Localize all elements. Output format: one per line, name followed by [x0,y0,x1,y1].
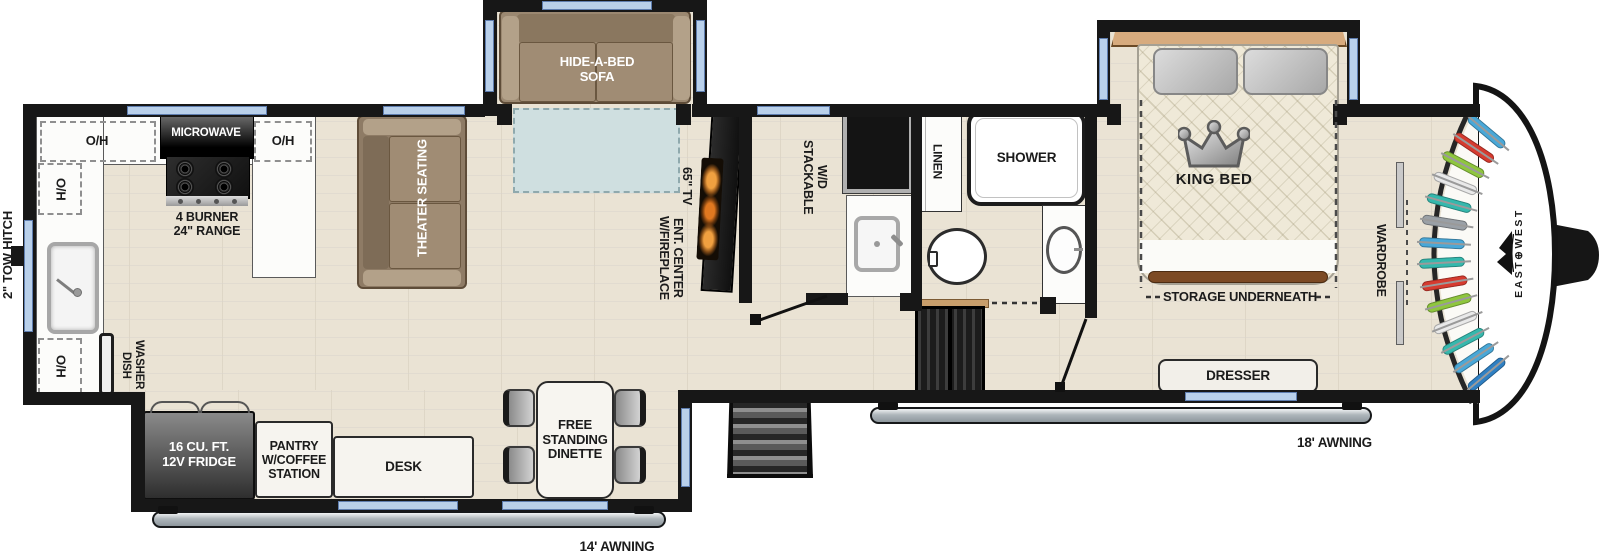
dresser-label: DRESSER [1158,367,1318,385]
bed-slide-wall-top [1097,20,1360,32]
kingpin-icon [1552,224,1599,287]
tow-hitch-label: 2" TOW HITCH [0,200,16,310]
drain-icon [874,241,880,247]
pillow [1243,48,1328,95]
burner-icon [215,178,233,196]
shower-label: SHOWER [975,148,1078,168]
wardrobe-label: WARDROBE [1370,210,1392,310]
brand-logo-text: EAST⊕WEST [1514,208,1526,298]
drain-icon [73,288,82,297]
bath-corner-stub [900,293,922,311]
dinette-chair [614,389,646,427]
king-bed-label: KING BED [1160,170,1268,190]
oh-label-1: O/H [68,131,126,151]
pantry-label: PANTRY W/COFFEE STATION [255,436,333,484]
fridge-door-arc [200,401,250,413]
wall-top-front [1350,104,1480,117]
awning-18ft [870,407,1372,424]
window [485,20,494,92]
dinette-chair [614,446,646,484]
half-bath-wall-stub [806,293,848,305]
entry-steps [727,392,813,478]
half-bath-vanity [846,195,912,297]
pocket-door-stub [1040,297,1056,314]
slide-wall-left [131,392,145,512]
theater-seating-label: THEATER SEATING [408,122,438,274]
dinette-chair [503,389,535,427]
hide-a-bed-sofa-label: HIDE-A-BED SOFA [517,48,677,92]
jamb-stub [1333,104,1347,125]
awning-cap [878,402,898,410]
crown-icon [1178,120,1250,172]
dishwasher-label: DISH WASHER [112,332,152,398]
interior-steps [915,306,985,396]
range-label: 4 BURNER 24" RANGE [147,208,267,240]
awning-cap [158,506,178,514]
toilet [927,228,987,285]
brand-logo: EAST⊕WEST [1488,193,1532,313]
bath-bedroom-wall [1085,111,1097,318]
jamb-stub [676,104,691,125]
wall-bottom-main [692,390,1480,403]
pillow [1153,48,1238,95]
stackable-wd-label: STACKABLE W/D [790,112,840,242]
window [24,220,33,332]
faucet-icon [1074,248,1083,251]
desk-label: DESK [333,458,474,476]
mountains-icon [1494,228,1514,278]
bath-divider-wall [911,111,922,303]
window [502,501,608,510]
storage-underneath-label: STORAGE UNDERNEATH [1158,289,1322,306]
kitchen-sink [47,242,99,334]
linen-label: LINEN [926,128,948,196]
awning-14ft [152,511,666,528]
wall-bottom-rear [23,392,145,405]
oh-label-3: O/H [50,164,70,214]
oh-label-4: O/H [50,341,70,391]
half-bath-sink [854,216,900,272]
window [383,106,465,115]
fridge-label: 16 CU. FT. 12V FRIDGE [143,438,255,472]
awning-14ft-label: 14' AWNING [553,538,681,555]
oh-label-2: O/H [254,131,312,151]
window [757,106,830,115]
bed-footboard [1148,271,1328,283]
window [696,20,705,92]
fridge-door-arc [150,401,200,413]
awning-18ft-label: 18' AWNING [1240,434,1372,451]
wall-top-mid [692,104,1107,117]
faucet-icon [890,234,903,247]
jamb-stub [497,104,512,125]
window [1185,392,1297,401]
awning-cap [1342,402,1362,410]
dinette-chair [503,446,535,484]
microwave-label: MICROWAVE [160,122,252,144]
stackable-washer-dryer [843,113,913,193]
dinette-label: FREE STANDING DINETTE [536,415,614,465]
closet-back-fill [1438,104,1478,404]
window [127,106,267,115]
jamb-stub [1107,104,1121,125]
window [1099,38,1108,100]
burner-icon [176,160,194,178]
wardrobe-door-track-top [1396,162,1404,228]
window [338,501,458,510]
bed-sheet-band [1140,240,1336,273]
burner-icon [215,160,233,178]
window [1349,38,1358,100]
range-cooktop [166,156,250,199]
window [542,1,652,10]
bath-vanity [1042,205,1088,304]
window [681,408,690,487]
floorplan-canvas: O/H O/H O/H O/H MICROWAVE 4 BURNER 24" R… [0,0,1600,557]
bath-sink [1046,226,1082,274]
wardrobe-door-track-bottom [1396,281,1404,345]
ent-center-label: ENT. CENTER W/FIREPLACE [650,198,692,318]
range-control-panel [166,196,248,206]
burner-icon [176,178,194,196]
awning-cap [634,506,654,514]
ent-center-wall [739,111,752,303]
